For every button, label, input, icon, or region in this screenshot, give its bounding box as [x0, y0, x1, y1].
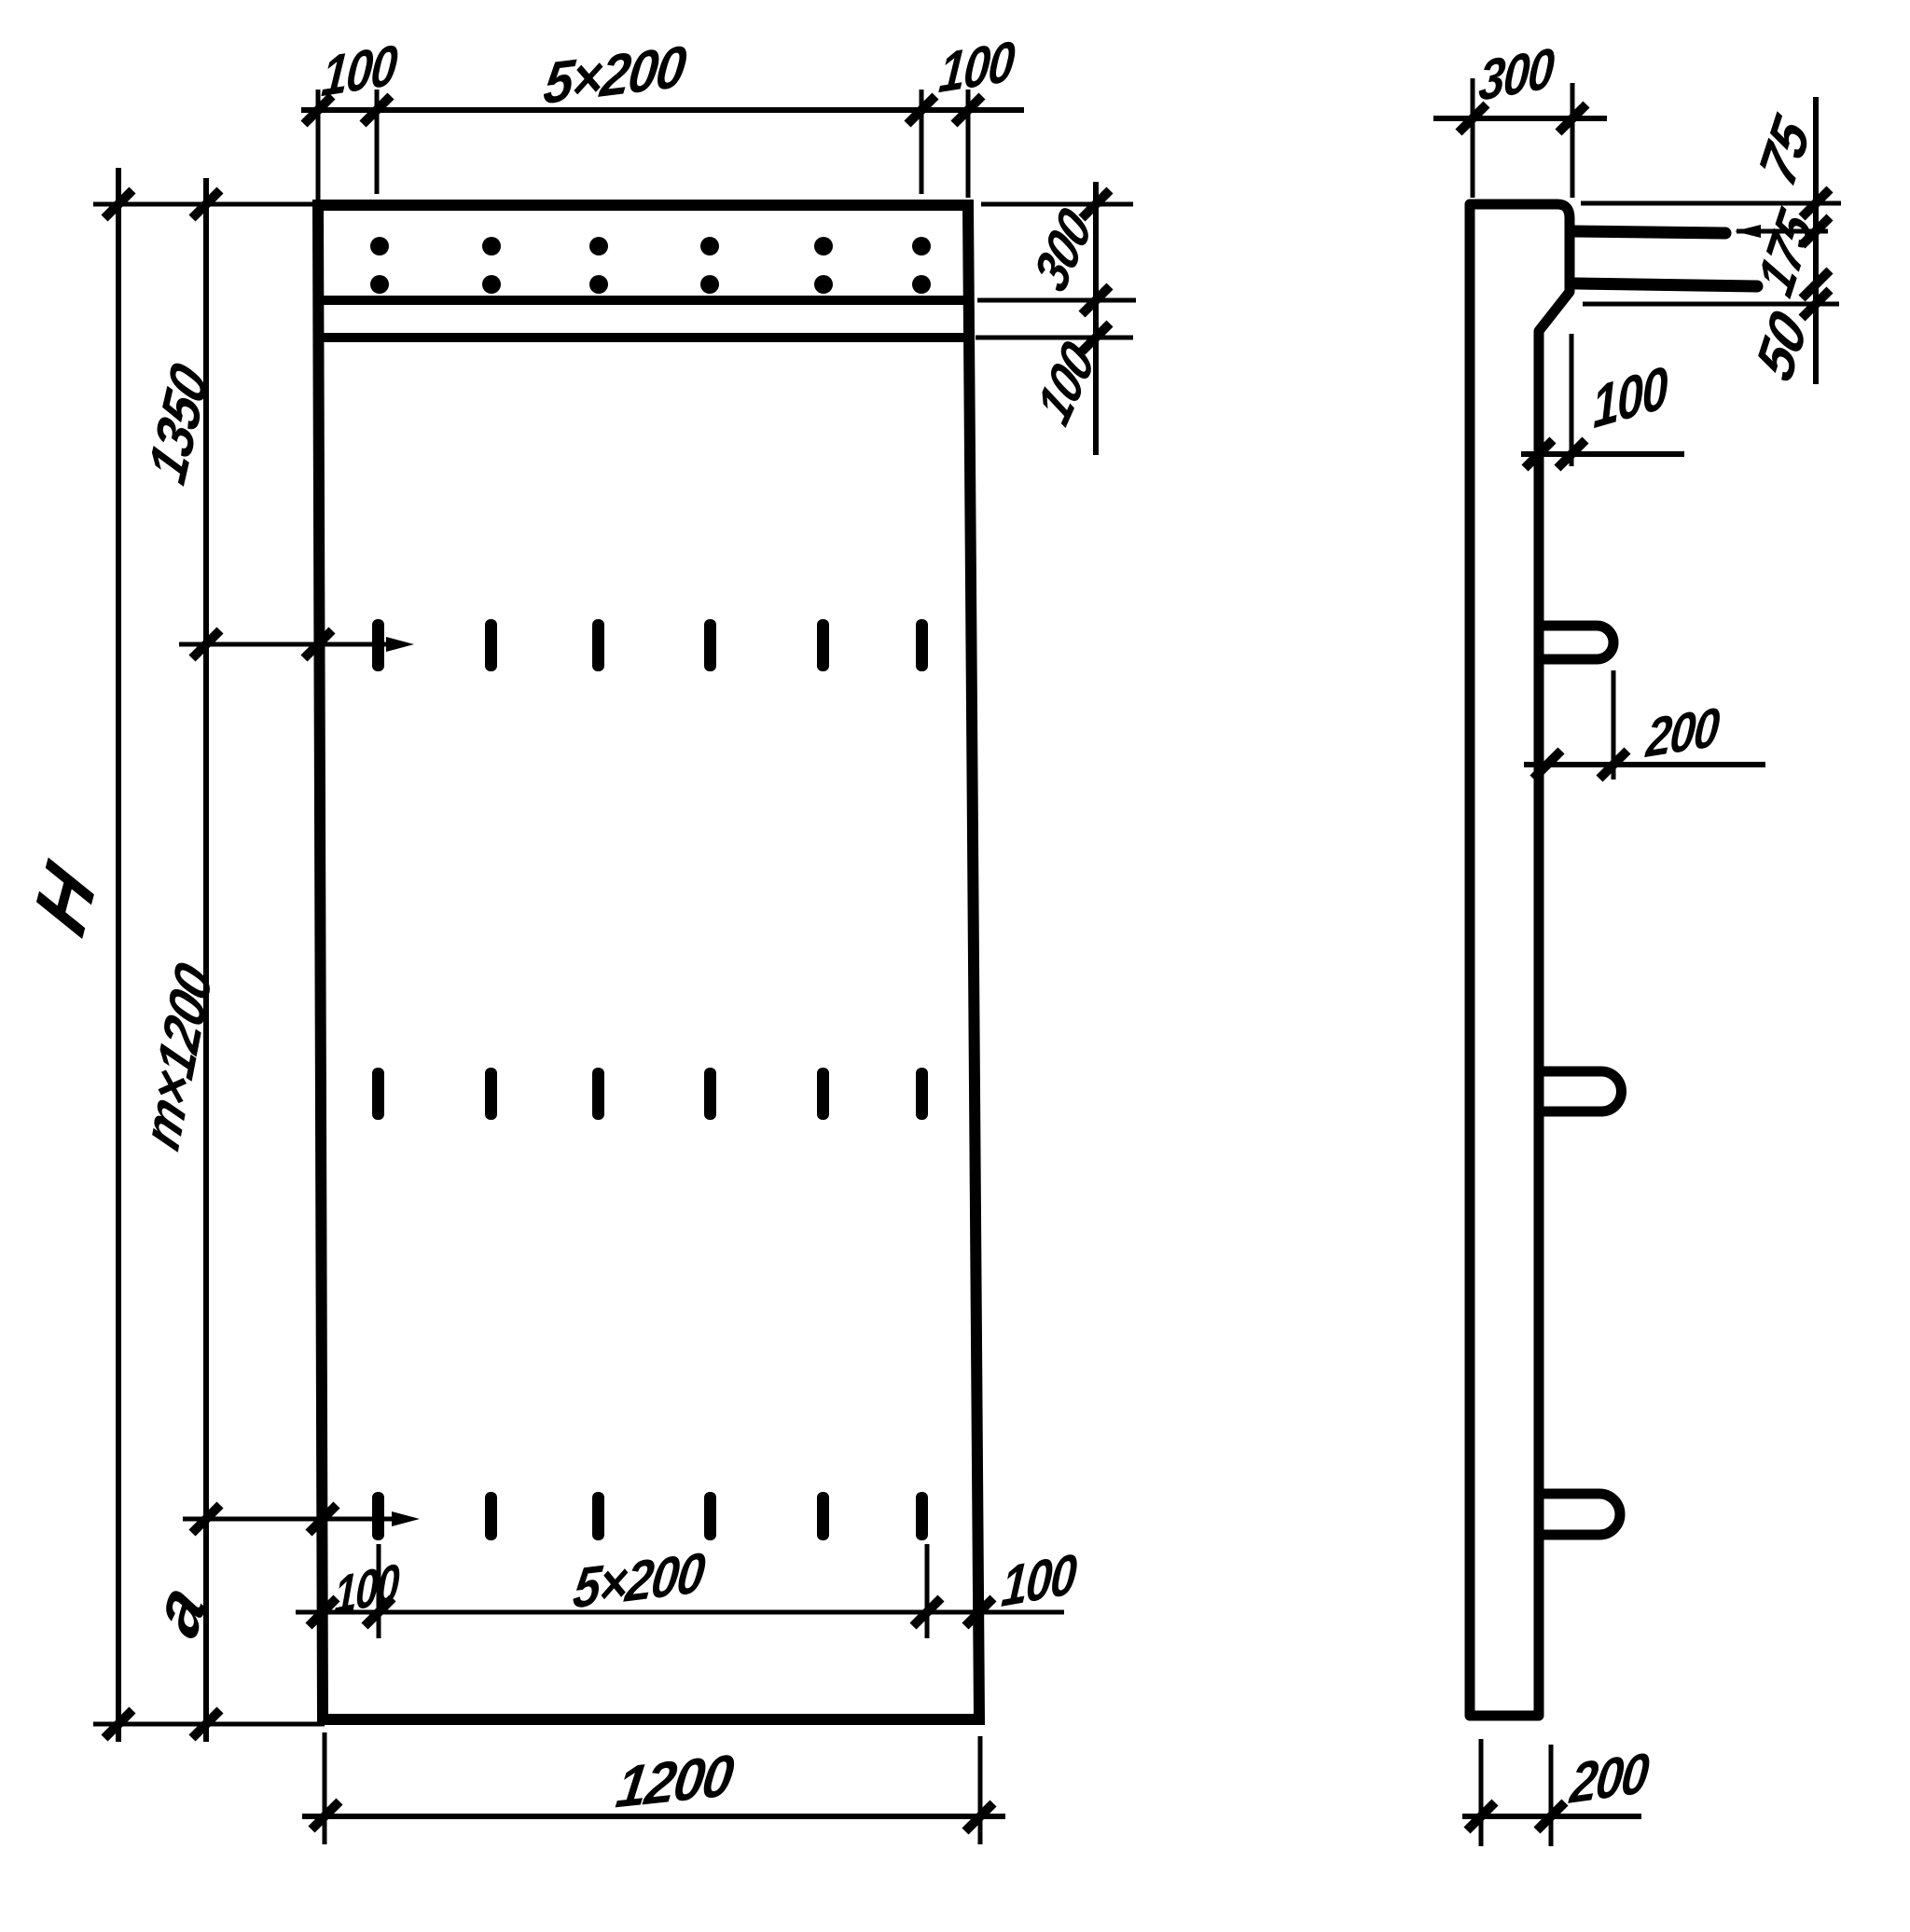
svg-text:200: 200: [1567, 1741, 1653, 1815]
svg-text:100: 100: [319, 34, 399, 109]
svg-text:100: 100: [936, 30, 1017, 105]
svg-text:200: 200: [1643, 695, 1722, 769]
svg-text:1200: 1200: [613, 1743, 738, 1821]
